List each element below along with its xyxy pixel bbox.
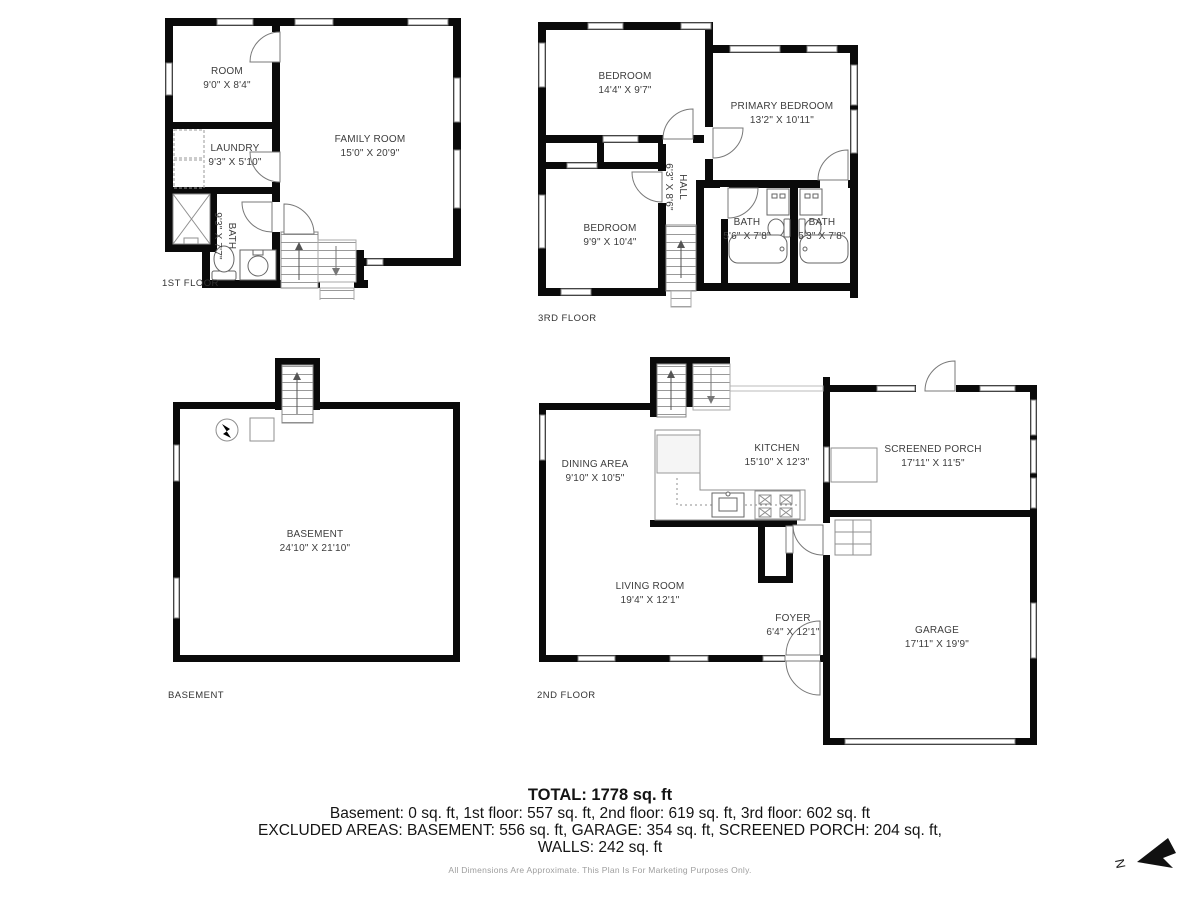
floor-label-first: 1ST FLOOR — [162, 278, 219, 289]
railing — [730, 386, 823, 391]
room-name: BASEMENT — [255, 528, 375, 542]
room-name: GARAGE — [877, 624, 997, 638]
room-dims: 24'10" X 21'10" — [255, 542, 375, 556]
room-label-dining-area: DINING AREA 9'10" X 10'5" — [535, 458, 655, 486]
room-dims: 14'4" X 9'7" — [575, 84, 675, 98]
room-label-living-room: LIVING ROOM 19'4" X 12'1" — [590, 580, 710, 608]
disclaimer-text: All Dimensions Are Approximate. This Pla… — [0, 865, 1200, 875]
stairs-icon — [282, 365, 313, 423]
kitchen-sink-icon — [712, 492, 744, 517]
room-label-garage: GARAGE 17'11" X 19'9" — [877, 624, 997, 652]
room-name: DINING AREA — [535, 458, 655, 472]
room-label-kitchen: KITCHEN 15'10" X 12'3" — [717, 442, 837, 470]
third-floor-plan: BEDROOM 14'4" X 9'7" PRIMARY BEDROOM 13'… — [533, 10, 863, 340]
room-label-room: ROOM 9'0" X 8'4" — [177, 65, 277, 93]
walls — [173, 358, 460, 662]
room-label-bedroom-1: BEDROOM 14'4" X 9'7" — [575, 70, 675, 98]
room-dims: 17'11" X 11'5" — [863, 457, 1003, 471]
room-label-bath-2: BATH 5'3" X 7'8" — [788, 216, 856, 244]
excluded-areas-text: EXCLUDED AREAS: BASEMENT: 556 sq. ft, GA… — [0, 822, 1200, 839]
room-name: BEDROOM — [560, 222, 660, 236]
room-name: HALL — [675, 149, 689, 225]
floor-label-third: 3RD FLOOR — [538, 313, 597, 324]
basement-plan: BASEMENT 24'10" X 21'10" BASEMENT — [160, 350, 470, 710]
utility-box-icon — [250, 418, 274, 441]
compass-north-icon: N — [1100, 825, 1200, 885]
stairs-icon — [657, 364, 730, 417]
room-label-bedroom-2: BEDROOM 9'9" X 10'4" — [560, 222, 660, 250]
room-dims: 9'3" X 5'10" — [185, 156, 285, 170]
room-name: PRIMARY BEDROOM — [712, 100, 852, 114]
room-dims: 9'10" X 10'5" — [535, 472, 655, 486]
room-label-family-room: FAMILY ROOM 15'0" X 20'9" — [310, 133, 430, 161]
room-name: LAUNDRY — [185, 142, 285, 156]
walls-area-text: WALLS: 242 sq. ft — [0, 839, 1200, 856]
room-name: KITCHEN — [717, 442, 837, 456]
floor-label-second: 2ND FLOOR — [537, 690, 596, 701]
room-name: LIVING ROOM — [590, 580, 710, 594]
room-name: FAMILY ROOM — [310, 133, 430, 147]
room-label-bath: BATH 9'3" X 7'7" — [210, 196, 238, 276]
room-label-screened-porch: SCREENED PORCH 17'11" X 11'5" — [863, 443, 1003, 471]
floor-areas-text: Basement: 0 sq. ft, 1st floor: 557 sq. f… — [0, 805, 1200, 822]
room-dims: 9'0" X 8'4" — [177, 79, 277, 93]
room-dims: 17'11" X 19'9" — [877, 638, 997, 652]
refrigerator-icon — [657, 435, 700, 473]
room-dims: 15'10" X 12'3" — [717, 456, 837, 470]
room-name: BATH — [788, 216, 856, 230]
room-dims: 9'9" X 10'4" — [560, 236, 660, 250]
water-heater-icon — [216, 419, 238, 441]
total-area-text: TOTAL: 1778 sq. ft — [0, 786, 1200, 805]
room-label-basement: BASEMENT 24'10" X 21'10" — [255, 528, 375, 556]
room-dims: 5'3" X 7'8" — [788, 230, 856, 244]
room-dims: 9'3" X 7'7" — [210, 196, 224, 276]
room-label-laundry: LAUNDRY 9'3" X 5'10" — [185, 142, 285, 170]
room-dims: 15'0" X 20'9" — [310, 147, 430, 161]
room-label-hall: HALL 6'3" X 8'6" — [663, 149, 689, 225]
second-floor-plan: DINING AREA 9'10" X 10'5" KITCHEN 15'10"… — [535, 350, 1045, 760]
compass-north-label: N — [1112, 857, 1129, 869]
room-label-bath-1: BATH 5'6" X 7'8" — [713, 216, 781, 244]
room-dims: 6'4" X 12'1" — [753, 626, 833, 640]
room-label-foyer: FOYER 6'4" X 12'1" — [753, 612, 833, 640]
garage-steps — [835, 520, 871, 555]
room-dims: 13'2" X 10'11" — [712, 114, 852, 128]
room-dims: 5'6" X 7'8" — [713, 230, 781, 244]
third-floor-drawing — [533, 10, 863, 340]
room-name: BEDROOM — [575, 70, 675, 84]
room-dims: 19'4" X 12'1" — [590, 594, 710, 608]
room-name: FOYER — [753, 612, 833, 626]
floor-plan-sheet: ROOM 9'0" X 8'4" LAUNDRY 9'3" X 5'10" BA… — [0, 0, 1200, 900]
room-dims: 6'3" X 8'6" — [661, 149, 675, 225]
sink-icon — [240, 250, 276, 280]
shower-icon — [173, 194, 210, 244]
floor-label-basement: BASEMENT — [168, 690, 224, 701]
first-floor-plan: ROOM 9'0" X 8'4" LAUNDRY 9'3" X 5'10" BA… — [160, 10, 470, 300]
stairs-icon — [666, 225, 696, 307]
room-name: SCREENED PORCH — [863, 443, 1003, 457]
room-label-primary-bedroom: PRIMARY BEDROOM 13'2" X 10'11" — [712, 100, 852, 128]
second-floor-drawing — [535, 350, 1045, 760]
stairs-icon — [281, 232, 356, 300]
area-summary: TOTAL: 1778 sq. ft Basement: 0 sq. ft, 1… — [0, 786, 1200, 875]
room-name: ROOM — [177, 65, 277, 79]
room-name: BATH — [713, 216, 781, 230]
room-name: BATH — [224, 196, 238, 276]
